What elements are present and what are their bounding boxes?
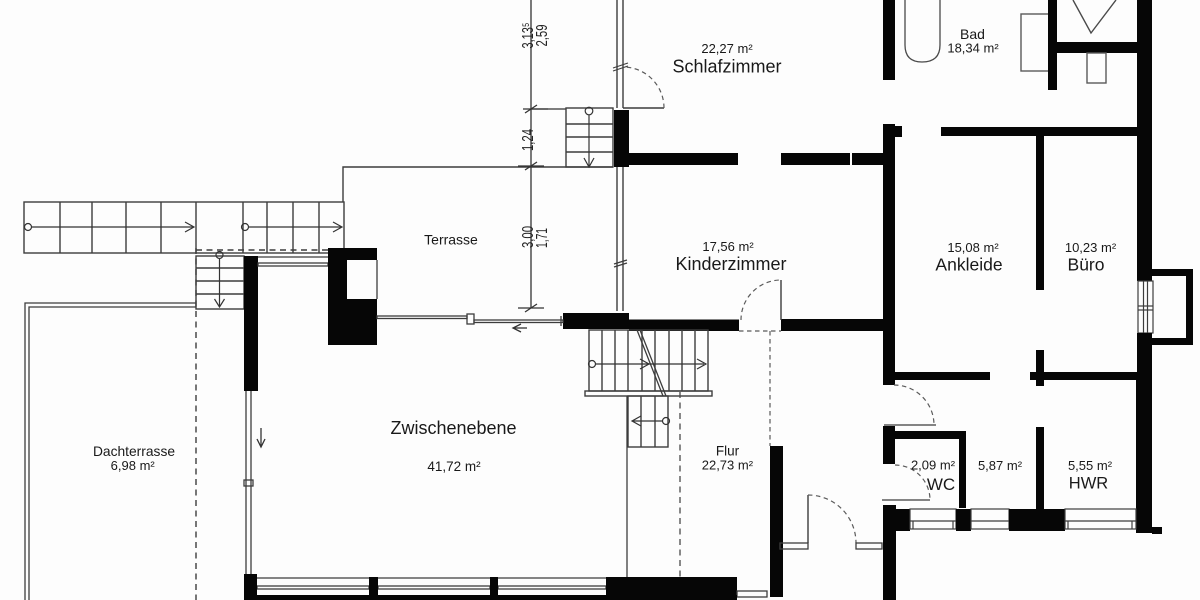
svg-text:22,27 m²: 22,27 m²	[701, 41, 753, 56]
svg-text:2,59: 2,59	[534, 24, 551, 46]
svg-text:Dachterrasse: Dachterrasse	[93, 444, 175, 459]
svg-text:Kinderzimmer: Kinderzimmer	[675, 254, 786, 274]
svg-text:Flur: Flur	[716, 444, 740, 459]
svg-text:Zwischenebene: Zwischenebene	[390, 418, 516, 438]
svg-text:5,87 m²: 5,87 m²	[978, 458, 1023, 473]
svg-text:22,73 m²: 22,73 m²	[702, 458, 754, 473]
svg-text:Büro: Büro	[1068, 255, 1105, 275]
svg-text:1,71: 1,71	[534, 228, 551, 248]
svg-text:41,72 m²: 41,72 m²	[427, 459, 481, 474]
svg-text:5,55 m²: 5,55 m²	[1068, 458, 1113, 473]
svg-text:HWR: HWR	[1069, 475, 1108, 493]
svg-text:2,09 m²: 2,09 m²	[911, 458, 956, 473]
svg-text:Ankleide: Ankleide	[935, 255, 1002, 275]
svg-text:Terrasse: Terrasse	[424, 232, 478, 248]
svg-text:6,98 m²: 6,98 m²	[111, 458, 156, 473]
svg-text:15,08 m²: 15,08 m²	[947, 240, 999, 255]
svg-text:Schlafzimmer: Schlafzimmer	[672, 57, 781, 77]
svg-text:17,56 m²: 17,56 m²	[702, 239, 754, 254]
svg-text:18,34 m²: 18,34 m²	[947, 41, 999, 56]
svg-text:1,24: 1,24	[520, 129, 537, 151]
svg-text:WC: WC	[927, 475, 955, 494]
svg-text:10,23 m²: 10,23 m²	[1065, 240, 1117, 255]
